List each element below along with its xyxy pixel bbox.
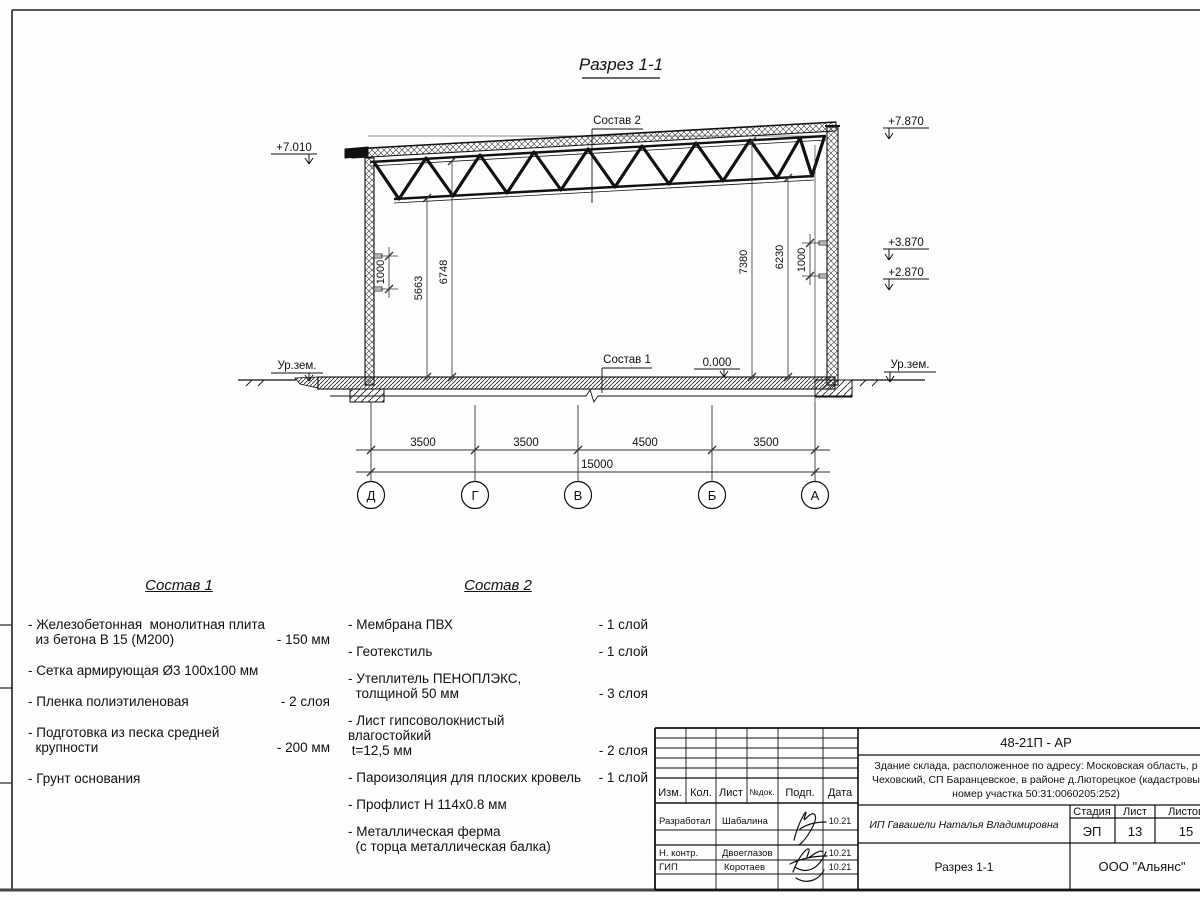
list-item: - Профлист Н 114х0.8 мм [348, 797, 648, 812]
sostav1-callout: Состав 1 [603, 354, 651, 366]
elev-left-label: +7.010 [276, 142, 312, 154]
stage-value: ЭП [1083, 824, 1102, 839]
dim-15000: 15000 [581, 459, 613, 471]
client-name: ИП Гавашели Наталья Владимировна [869, 819, 1058, 831]
list-item: - Мембрана ПВХ - 1 слой [348, 617, 648, 632]
row2-role: Н. контр. [659, 848, 698, 859]
axis-b: Б [708, 488, 717, 503]
col-izm: Изм. [658, 787, 682, 799]
project-desc-line2: Чеховский, СП Баранцевское, в районе д.Л… [872, 774, 1200, 786]
row3-name: Коротаев [724, 862, 765, 873]
col-data: Дата [828, 787, 853, 799]
row1-name: Шабалина [722, 816, 769, 827]
ground-line-right [852, 380, 925, 386]
list-item: - Железобетонная монолитная плита из бет… [28, 617, 330, 647]
ground-label-left: Ур.зем. [277, 360, 316, 372]
sostav1-title: Состав 1 [28, 578, 330, 593]
dim-4500: 4500 [632, 437, 658, 449]
row1-date: 10.21 [829, 816, 852, 826]
sheets-value: 15 [1179, 824, 1193, 839]
row3-date: 10.21 [829, 862, 852, 872]
col-kol: Кол. [690, 787, 712, 799]
ground-label-right: Ур.зем. [890, 359, 929, 371]
list-item: - Пароизоляция для плоских кровель - 1 с… [348, 770, 648, 785]
company-name: ООО "Альянс" [1099, 859, 1186, 874]
list-item: - Утеплитель ПЕНОПЛЭКС, толщиной 50 мм -… [348, 671, 648, 701]
col-ndok: №док. [750, 787, 775, 797]
dim-3500-2: 3500 [513, 437, 539, 449]
list-item: - Подготовка из песка средней крупности … [28, 725, 330, 755]
elev-r2-label: +3.870 [888, 237, 924, 249]
signatures [790, 812, 827, 881]
signature-2 [790, 849, 827, 881]
axis-v: В [574, 488, 583, 503]
project-desc-line1: Здание склада, расположенное по адресу: … [874, 760, 1197, 772]
dim-1000-right: 1000 [796, 248, 808, 272]
sheet-label: Лист [1123, 806, 1147, 818]
axis-d: Д [367, 488, 376, 503]
signature-1 [794, 812, 826, 845]
roof-edge-flashing [345, 147, 368, 158]
dim-3500-3: 3500 [753, 437, 779, 449]
doc-code: 48-21П - АР [1000, 735, 1072, 750]
left-footing [350, 389, 384, 402]
sheet-value: 13 [1128, 824, 1142, 839]
list-item: - Пленка полиэтиленовая - 2 слоя [28, 694, 330, 709]
dim-3500-1: 3500 [410, 437, 436, 449]
elev-r1-label: +7.870 [888, 116, 924, 128]
right-footing [815, 380, 852, 397]
axis-bubbles [358, 482, 829, 509]
row3-role: ГИП [659, 862, 678, 873]
dim-6230: 6230 [774, 245, 786, 269]
list-item: - Сетка армирующая Ø3 100х100 мм [28, 663, 330, 678]
zero-level-label: 0.000 [703, 357, 732, 369]
sheet-title: Разрез 1-1 [935, 860, 994, 874]
right-wall [827, 127, 838, 385]
axis-a: А [811, 488, 820, 503]
sostav2-callout: Состав 2 [593, 115, 641, 127]
row2-name: Двоеглазов [722, 848, 773, 859]
col-podp: Подп. [785, 787, 814, 799]
list-item: - Грунт основания [28, 771, 330, 786]
floor-slab [318, 377, 835, 389]
sostav1-list: Состав 1 - Железобетонная монолитная пли… [28, 578, 330, 802]
row1-role: Разработал [659, 816, 711, 827]
ground-line-left [238, 380, 296, 386]
stage-label: Стадия [1073, 806, 1111, 818]
dim-1000-left: 1000 [375, 260, 387, 284]
sostav2-list: Состав 2 - Мембрана ПВХ - 1 слой - Геоте… [348, 578, 648, 866]
dim-6748: 6748 [438, 260, 450, 284]
building-section [238, 122, 925, 402]
sheets-label: Листов [1168, 806, 1200, 818]
dim-5663: 5663 [413, 276, 425, 300]
dim-7380: 7380 [738, 250, 750, 274]
left-wall [365, 158, 374, 385]
list-item: - Лист гипсоволокнистый влагостойкий t=1… [348, 713, 648, 758]
row2-date: 10.21 [829, 848, 852, 858]
project-desc-line3: номер участка 50:31:0060205:252) [952, 788, 1120, 800]
list-item: - Геотекстиль - 1 слой [348, 644, 648, 659]
col-list: Лист [719, 787, 743, 799]
drawing-sheet: Разрез 1-1 [0, 0, 1200, 900]
sostav2-title: Состав 2 [348, 578, 648, 593]
list-item: - Металлическая ферма (с торца металличе… [348, 824, 648, 854]
section-title: Разрез 1-1 [579, 55, 663, 74]
axis-g: Г [471, 488, 478, 503]
elev-r3-label: +2.870 [888, 267, 924, 279]
